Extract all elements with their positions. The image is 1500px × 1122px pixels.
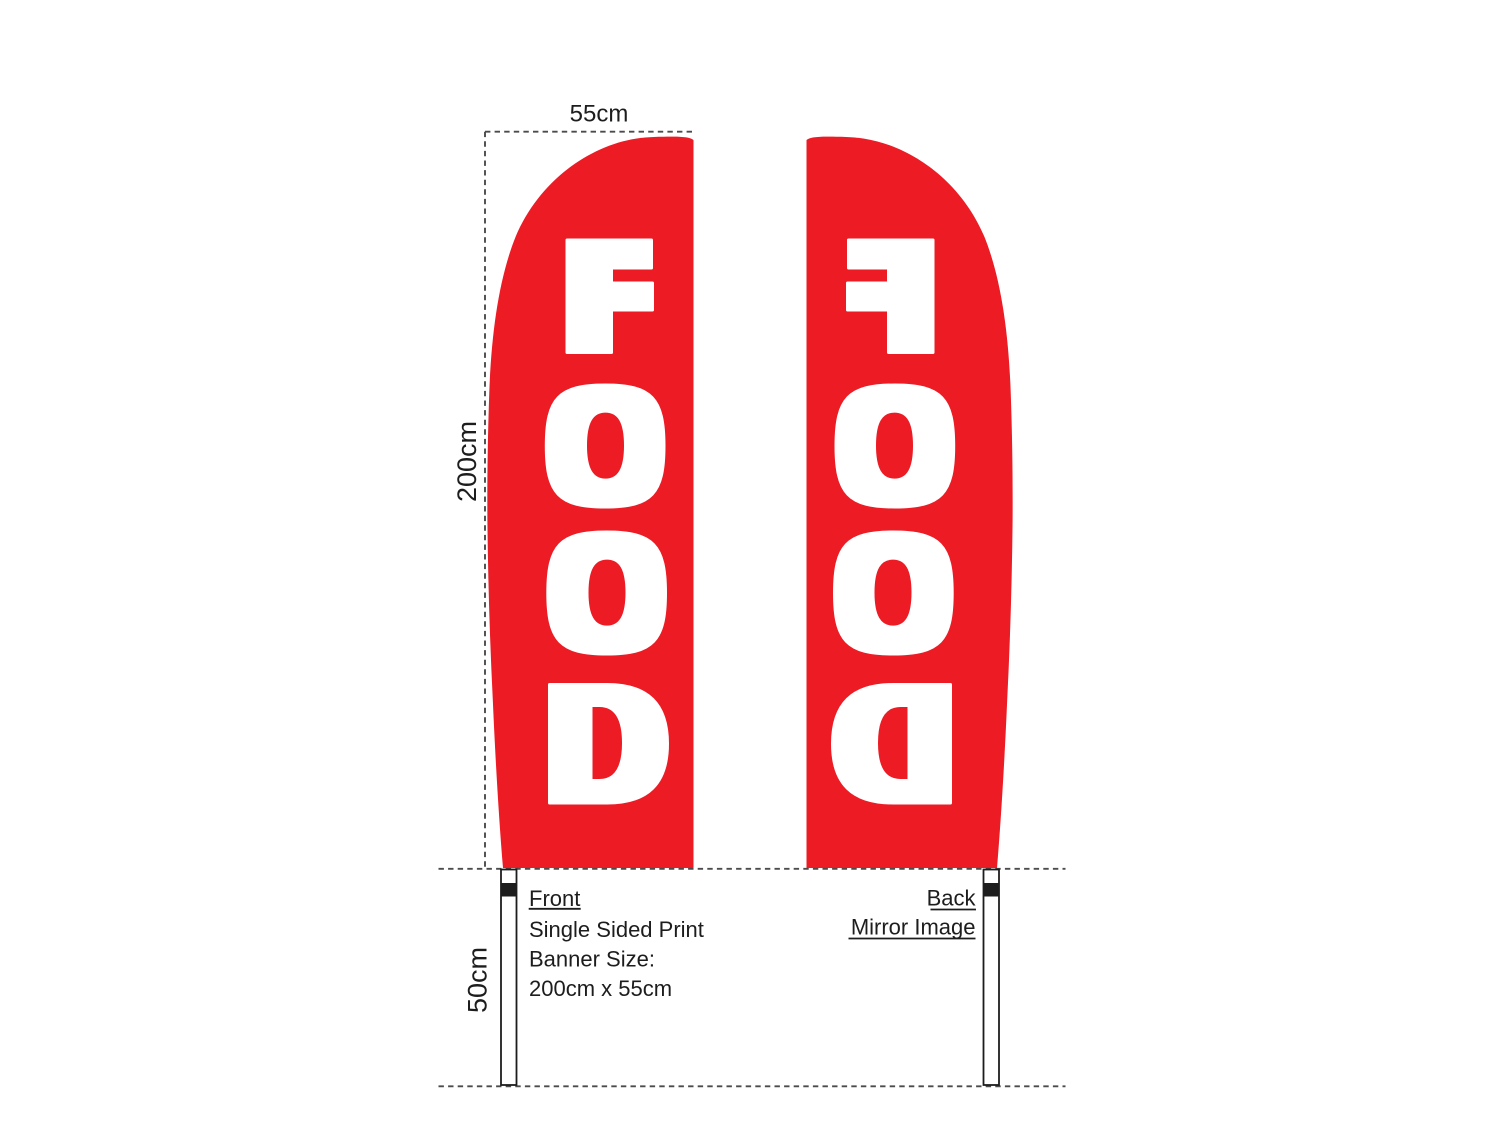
svg-text:55cm: 55cm	[570, 101, 629, 128]
svg-text:Mirror Image: Mirror Image	[851, 915, 976, 940]
svg-text:200cm x 55cm: 200cm x 55cm	[529, 976, 672, 1001]
svg-text:50cm: 50cm	[463, 947, 493, 1013]
svg-text:Single Sided Print: Single Sided Print	[529, 917, 704, 942]
svg-text:Back: Back	[927, 886, 977, 911]
svg-text:Front: Front	[529, 886, 580, 911]
svg-text:Banner Size:: Banner Size:	[529, 947, 655, 972]
svg-text:200cm: 200cm	[452, 421, 482, 502]
